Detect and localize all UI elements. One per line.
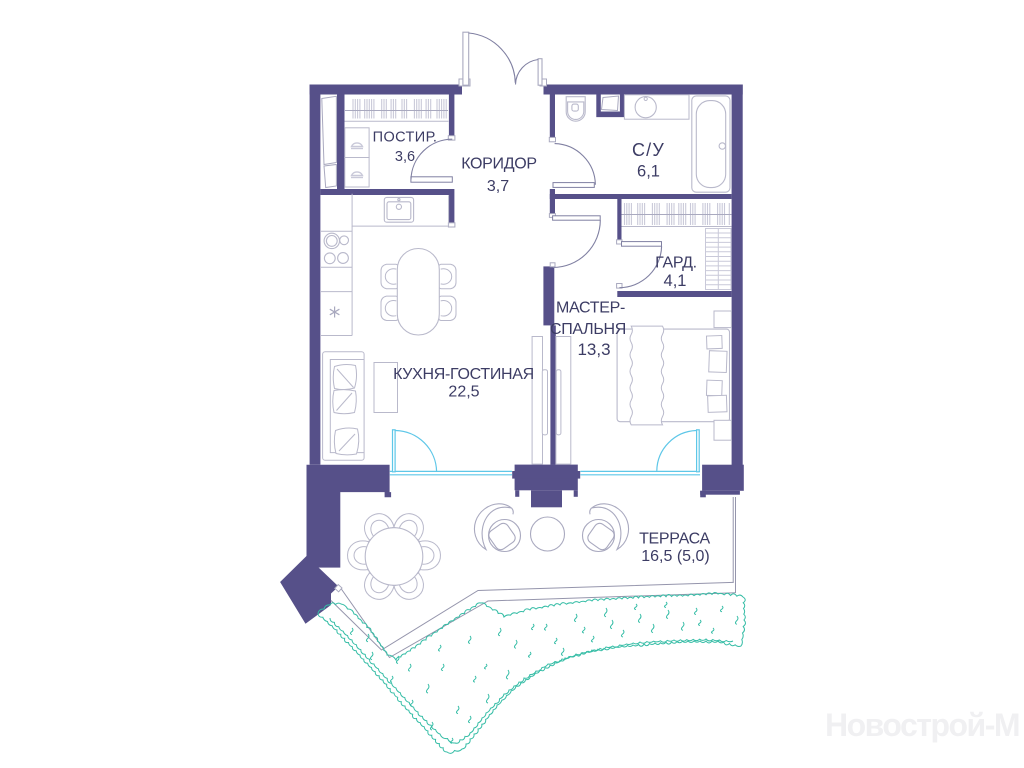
svg-text:КУХНЯ-ГОСТИНАЯ: КУХНЯ-ГОСТИНАЯ (393, 366, 534, 383)
svg-text:4,1: 4,1 (664, 272, 687, 290)
svg-text:3,6: 3,6 (395, 149, 415, 165)
svg-text:22,5: 22,5 (448, 384, 479, 401)
svg-text:ГАРД.: ГАРД. (655, 255, 697, 272)
svg-text:6,1: 6,1 (637, 163, 660, 181)
svg-text:Новострой-М: Новострой-М (825, 707, 1019, 743)
svg-text:СПАЛЬНЯ: СПАЛЬНЯ (550, 321, 626, 338)
svg-text:3,7: 3,7 (487, 178, 509, 195)
svg-text:С/У: С/У (632, 140, 665, 160)
svg-text:ПОСТИР.: ПОСТИР. (373, 130, 438, 146)
svg-text:МАСТЕР-: МАСТЕР- (556, 300, 625, 317)
svg-text:ТЕРРАСА: ТЕРРАСА (639, 531, 710, 548)
svg-text:13,3: 13,3 (577, 340, 610, 359)
svg-text:16,5 (5,0): 16,5 (5,0) (641, 548, 709, 565)
svg-text:КОРИДОР: КОРИДОР (461, 156, 537, 173)
